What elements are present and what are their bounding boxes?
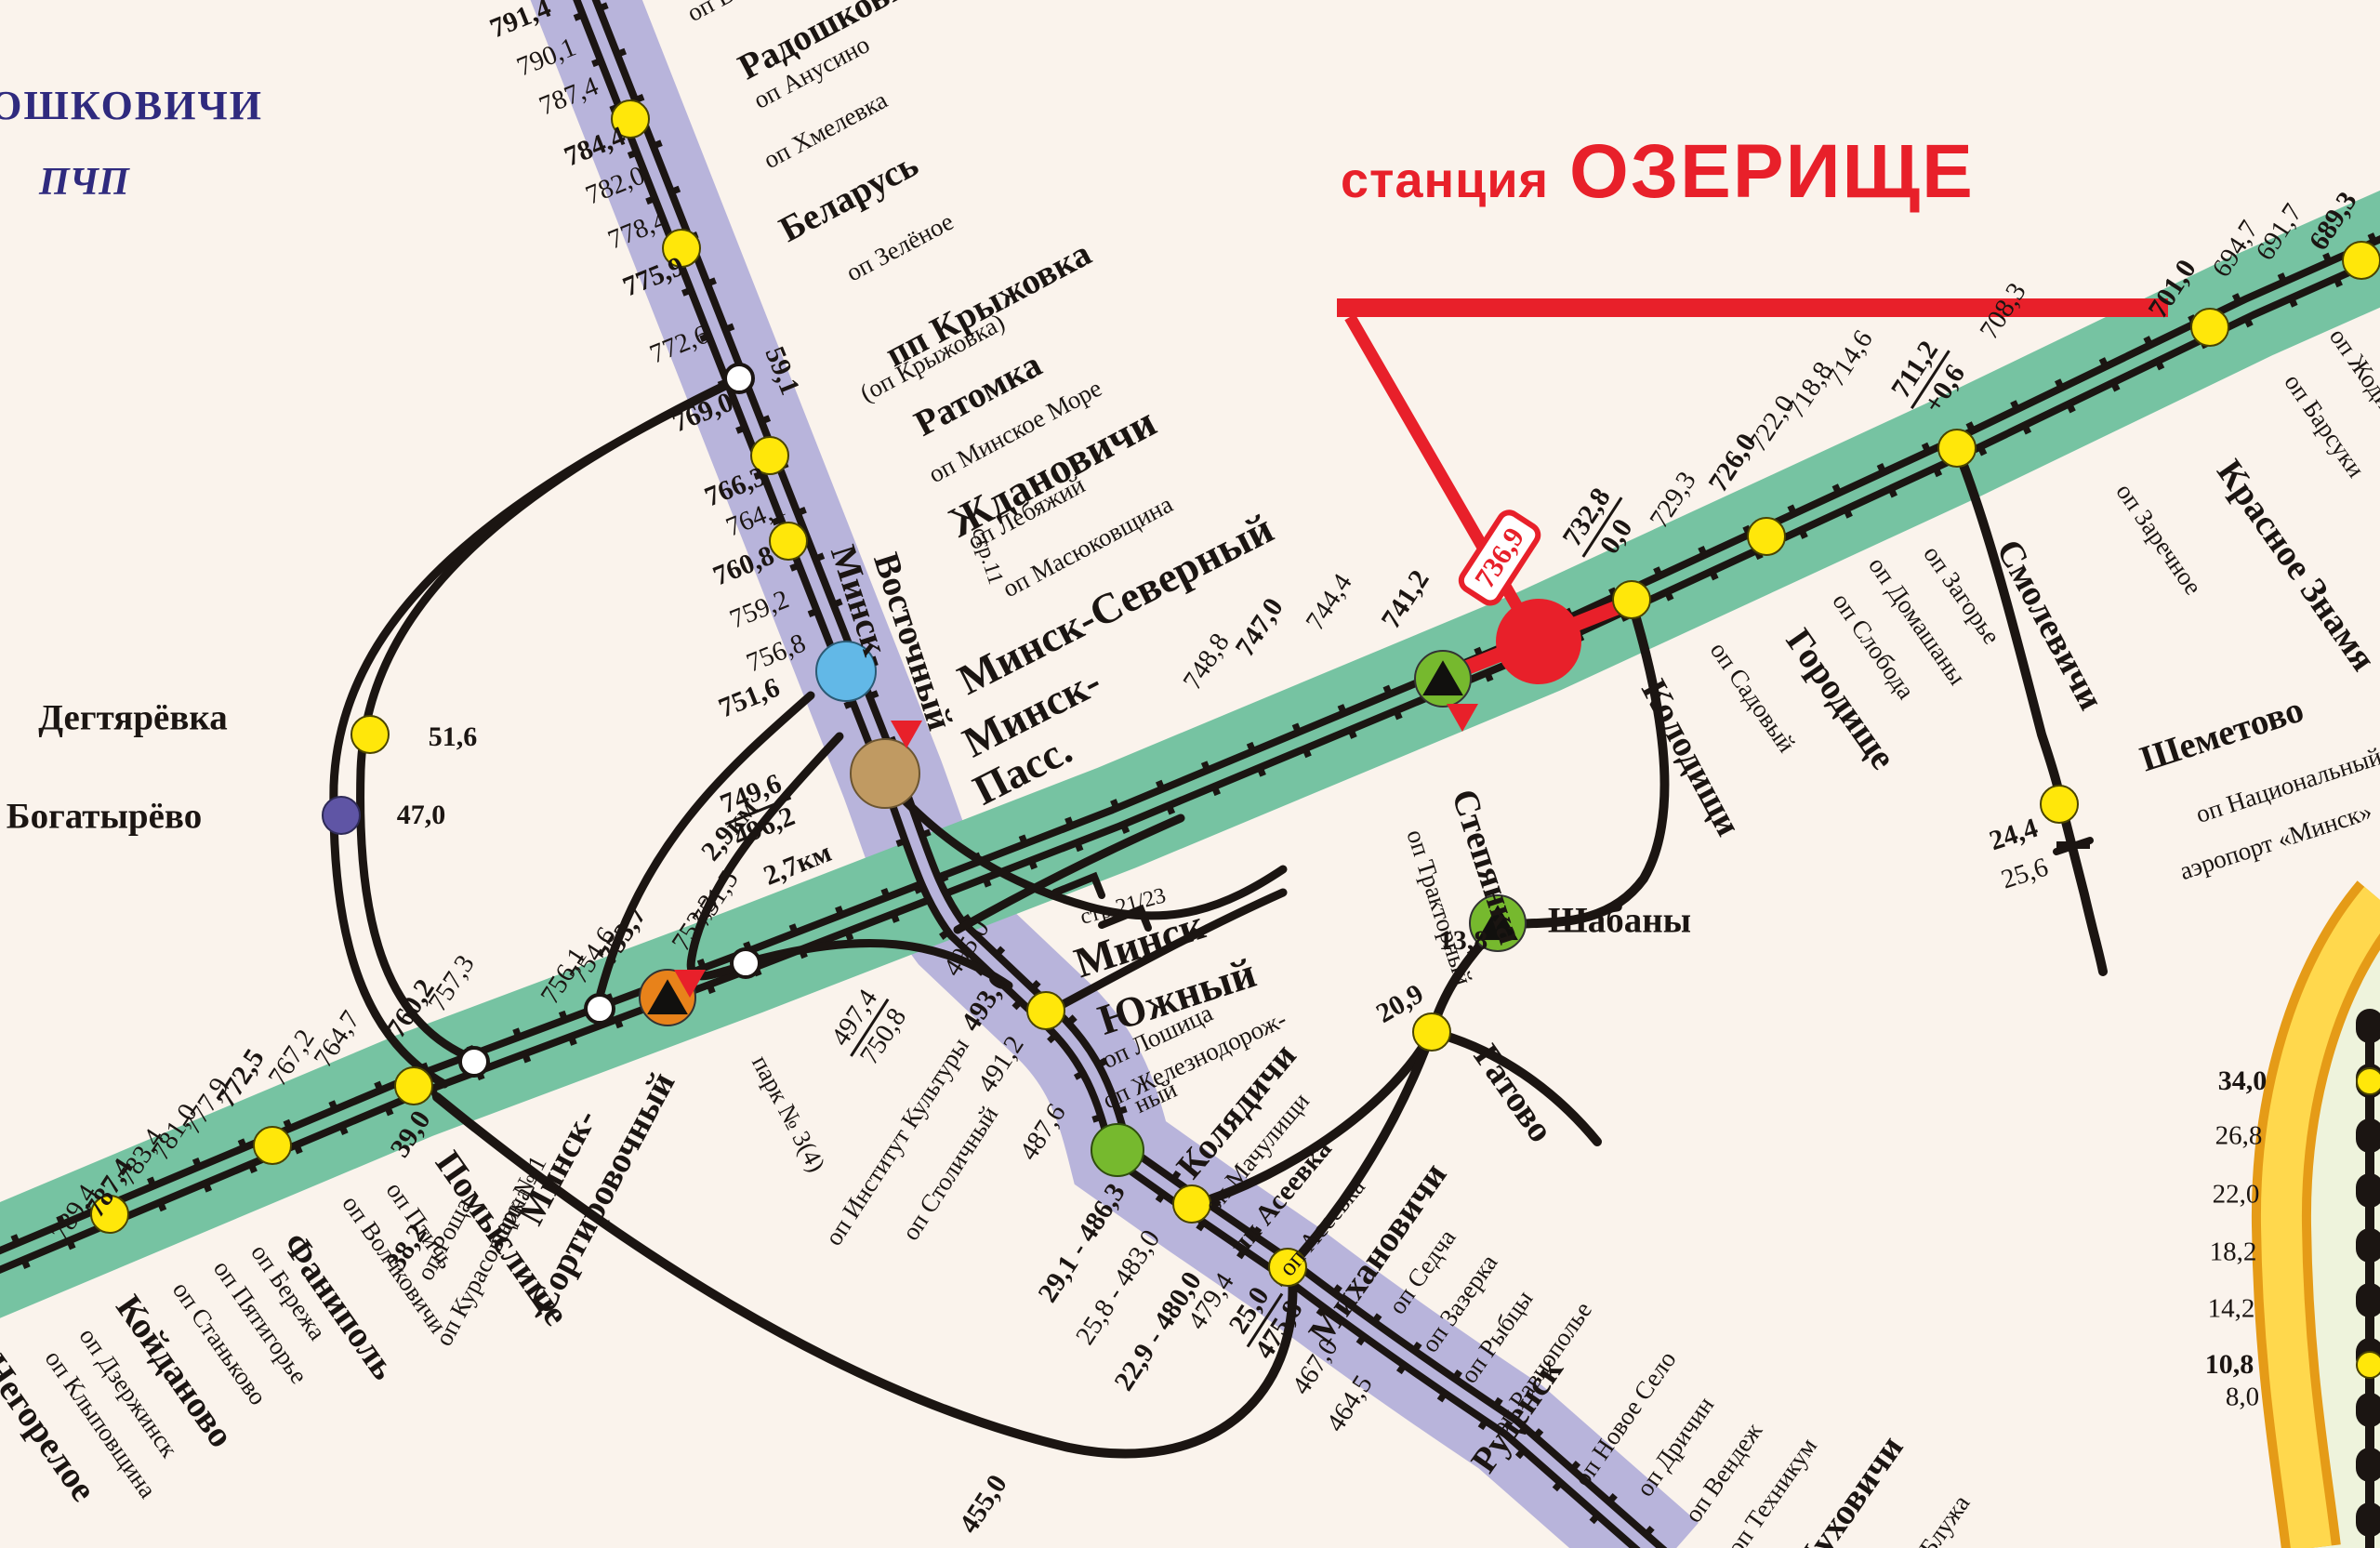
- junction-kolodishchi-marker: [1612, 580, 1651, 619]
- station-stepyanka-marker: [1414, 650, 1472, 708]
- halt-493-0-marker: [1026, 991, 1065, 1030]
- junction-gatovo-marker: [1412, 1012, 1451, 1052]
- map-title-station: ОЗЕРИЩЕ: [1569, 128, 1975, 216]
- halt-726-0-marker: [1747, 517, 1786, 556]
- station-701-0-marker: [2190, 308, 2229, 347]
- map-title-prefix: станция: [1341, 152, 1549, 209]
- map-label: 8,0: [2226, 1384, 2259, 1411]
- junction-smolevichi-marker: [1937, 429, 1977, 468]
- corner-depot-name: РАДОШКОВИЧИ: [0, 82, 263, 129]
- map-label: 22,0: [2213, 1182, 2260, 1209]
- map-label: Дегтярёвка: [38, 700, 228, 736]
- edge-station-10-8-marker: [2356, 1351, 2380, 1379]
- signal-near-sortirovochny-icon: [674, 970, 706, 998]
- post-751-5-marker: [730, 947, 761, 979]
- map-label: Шабаны: [1548, 903, 1691, 939]
- halt-bogatyryovo-marker: [322, 796, 361, 835]
- station-ozerishche-marker: [1496, 599, 1581, 684]
- map-label: 14,2: [2208, 1296, 2255, 1323]
- post-siding-marker: [584, 993, 615, 1025]
- tick-25-6-marker: [2056, 841, 2090, 849]
- map-label: 10,8: [2205, 1351, 2254, 1379]
- post-760-2-marker: [458, 1046, 490, 1078]
- map-label: 51,6: [429, 723, 478, 751]
- halt-760-8-marker: [769, 522, 808, 561]
- corner-depot-sub: ПЧП: [39, 160, 129, 205]
- map-label: Богатырёво: [7, 799, 202, 835]
- map-label: 34,0: [2218, 1067, 2268, 1095]
- map-label: 47,0: [397, 801, 446, 829]
- railway-map-canvas: станция ОЗЕРИЩЕ РАДОШКОВИЧИ ПЧП 736,9 оп…: [0, 0, 2380, 1548]
- map-title: станция ОЗЕРИЩЕ: [1341, 128, 1975, 216]
- station-689-3-marker: [2342, 241, 2380, 280]
- junction-769-0-marker: [723, 363, 755, 394]
- halt-772-5-marker: [253, 1126, 292, 1165]
- edge-station-34-0-marker: [2356, 1067, 2380, 1095]
- map-label: 13,8: [1439, 927, 1488, 955]
- junction-pomyslishche-marker: [394, 1066, 433, 1105]
- halt-degtyaryovka-marker: [350, 715, 390, 754]
- station-minsk-pass-marker: [850, 738, 920, 809]
- map-label: 18,2: [2210, 1239, 2257, 1266]
- station-shemetovo-marker: [2040, 785, 2079, 824]
- station-kolyadichi-marker: [1091, 1123, 1144, 1177]
- signal-near-minsk-pass-icon: [891, 721, 922, 748]
- signal-near-stepyanka-icon: [1447, 704, 1478, 732]
- map-label: 26,8: [2215, 1123, 2263, 1150]
